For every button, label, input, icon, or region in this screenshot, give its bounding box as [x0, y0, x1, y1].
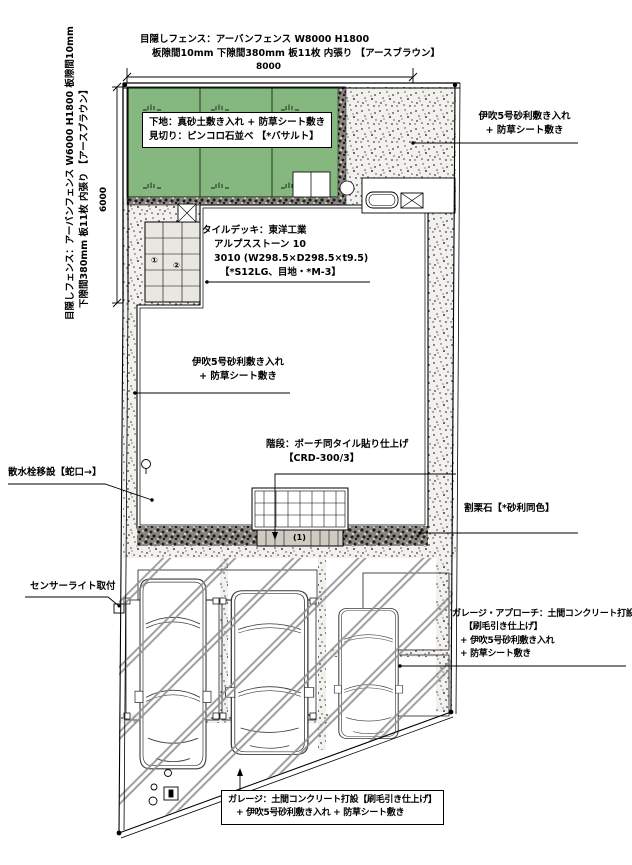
fence-top-line1: 目隠しフェンス：アーバンフェンス W8000 H1800 — [140, 33, 440, 47]
fence-left-line2: 下隙間380mm 板11枚 内張り 【アースブラウン】 — [78, 26, 92, 308]
tile-deck-line3: 3010 (W298.5×D298.5×t9.5) — [214, 252, 368, 266]
garage-line2: + 伊吹5号砂利敷き入れ + 防草シート敷き — [236, 807, 437, 820]
approach-line2: 【刷毛引き仕上げ】 — [464, 621, 632, 634]
garage-line1: ガレージ：土間コンクリート打設【刷毛引き仕上げ】 — [228, 794, 437, 807]
approach-line3: + 伊吹5号砂利敷き入れ — [460, 635, 632, 648]
label-gravel-right: 伊吹5号砂利敷き入れ + 防草シート敷き — [462, 110, 587, 138]
deck-tile-marker-1: ① — [151, 256, 158, 265]
gravel-mid-line1: 伊吹5号砂利敷き入れ — [178, 356, 298, 370]
approach-line1: ガレージ・アプローチ：土間コンクリート打設 — [452, 608, 632, 621]
fence-top-line2: 板隙間10mm 下隙間380mm 板11枚 内張り 【アースブラウン】 — [152, 47, 440, 61]
label-faucet: 散水栓移設【蛇口→】 — [8, 466, 101, 480]
label-sensor: センサーライト取付 — [30, 580, 116, 594]
gravel-mid-line2: + 防草シート敷き — [178, 370, 298, 384]
gravel-right-line2: + 防草シート敷き — [462, 124, 587, 138]
tile-deck-line1: タイルデッキ：東洋工業 — [202, 224, 368, 238]
label-ground-box: 下地：真砂土敷き入れ + 防草シート敷き 見切り：ピンコロ石並べ 【*バサルト】 — [142, 112, 332, 148]
fence-left-line1: 目隠しフェンス：アーバンフェンス W6000 H1800 板隙間10mm — [64, 26, 78, 320]
approach-line4: + 防草シート敷き — [460, 648, 632, 661]
gravel-right-line1: 伊吹5号砂利敷き入れ — [462, 110, 587, 124]
water-heater-icon — [366, 192, 398, 208]
ground-line2: 見切り：ピンコロ石並べ 【*バサルト】 — [149, 130, 325, 144]
dimension-left — [112, 83, 123, 307]
dimension-top-value: 8000 — [256, 62, 281, 72]
label-garage-box: ガレージ：土間コンクリート打設【刷毛引き仕上げ】 + 伊吹5号砂利敷き入れ + … — [221, 790, 444, 825]
deck-tile-marker-2: ② — [173, 261, 180, 270]
equipment-pad — [362, 178, 455, 213]
pole-symbol — [340, 181, 354, 195]
stairs-line2: 【CRD-300/3】 — [284, 452, 409, 466]
leader-sensor — [25, 597, 119, 606]
ac-unit-icon — [401, 193, 423, 208]
label-fence-top: 目隠しフェンス：アーバンフェンス W8000 H1800 板隙間10mm 下隙間… — [140, 33, 440, 61]
label-gravel-mid: 伊吹5号砂利敷き入れ + 防草シート敷き — [178, 356, 298, 384]
label-rubble: 割栗石【*砂利同色】 — [464, 502, 554, 516]
label-approach: ガレージ・アプローチ：土間コンクリート打設 【刷毛引き仕上げ】 + 伊吹5号砂利… — [452, 608, 632, 661]
tile-deck-line2: アルプスストーン 10 — [214, 238, 368, 252]
label-tile-deck: タイルデッキ：東洋工業 アルプスストーン 10 3010 (W298.5×D29… — [202, 224, 368, 280]
tile-deck-line4: 【*S12LG、目地・*M-3】 — [220, 266, 368, 280]
site-plan-drawing: 目隠しフェンス：アーバンフェンス W8000 H1800 板隙間10mm 下隙間… — [0, 0, 632, 865]
ground-line1: 下地：真砂土敷き入れ + 防草シート敷き — [149, 116, 325, 130]
stairs-line1: 階段：ポーチ同タイル貼り仕上げ — [266, 438, 409, 452]
step-count-marker: (1) — [293, 533, 306, 542]
label-stairs: 階段：ポーチ同タイル貼り仕上げ 【CRD-300/3】 — [266, 438, 409, 466]
label-fence-left: 目隠しフェンス：アーバンフェンス W6000 H1800 板隙間10mm 下隙間… — [64, 26, 92, 320]
dimension-left-value: 6000 — [99, 187, 109, 212]
deck-post-icon — [178, 204, 196, 222]
